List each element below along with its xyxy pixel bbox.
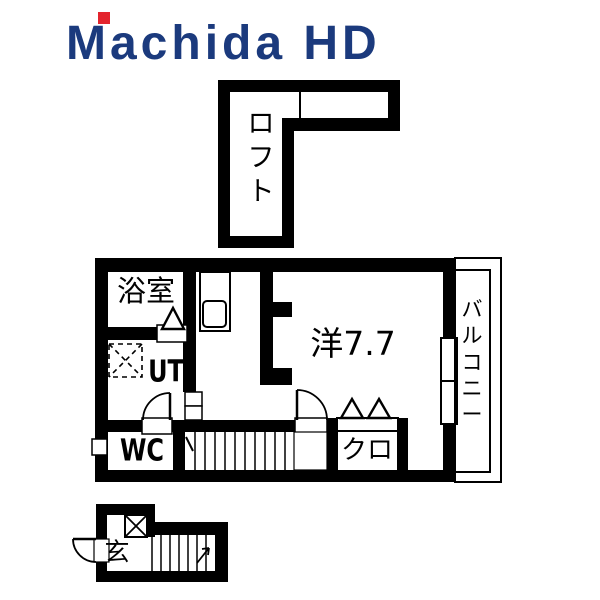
label-toilet: WC [120,435,164,468]
room-door-swing-arc [297,390,327,420]
pipe-space-box [185,406,202,420]
label-closet: クロ [341,437,393,466]
label-entrance: 玄 [104,538,129,566]
wall [108,420,295,432]
main-stairs-icon [186,432,327,470]
floor-plan-page: Machida HD [0,0,600,600]
wall [95,258,455,272]
pipe-space-box [185,392,202,406]
entrance-stairs-icon [152,535,209,571]
ut-door-swing-arc [143,393,170,420]
stair-direction-tick [186,437,193,451]
wash-basin-icon [200,272,230,331]
stair-direction-arrow [197,548,209,563]
loft-walls [218,80,400,248]
closet-folding-door-icon [368,399,390,418]
floor-plan-canvas [0,0,600,600]
wall [273,302,292,317]
wall [273,368,292,385]
entrance-door-swing-arc [73,539,96,562]
wall [260,258,273,385]
bathroom-folding-door-icon [162,308,184,329]
label-loft: ロフト [247,107,276,208]
wall [218,80,400,92]
wall [95,470,455,482]
washing-machine-space-icon [109,344,142,377]
wall [282,118,294,248]
x-box-icon [125,515,147,537]
basin [203,301,226,327]
wall [218,80,230,248]
wc-window [92,439,107,455]
wall [215,522,228,582]
label-western-room: 洋7.7 [310,326,395,362]
label-balcony: バルコニー [461,296,483,427]
wall [96,571,228,582]
wall [147,515,155,537]
pipe-space-icon [185,392,202,420]
label-utility: UT [148,356,184,389]
closet-door-track [337,418,398,431]
ut-door-threshold [142,418,172,434]
wall [282,118,400,131]
wall [173,432,185,470]
closet-folding-door-icon [341,399,363,418]
wall [388,80,400,131]
stair-landing [294,432,327,470]
label-bathroom: 浴室 [117,276,175,308]
